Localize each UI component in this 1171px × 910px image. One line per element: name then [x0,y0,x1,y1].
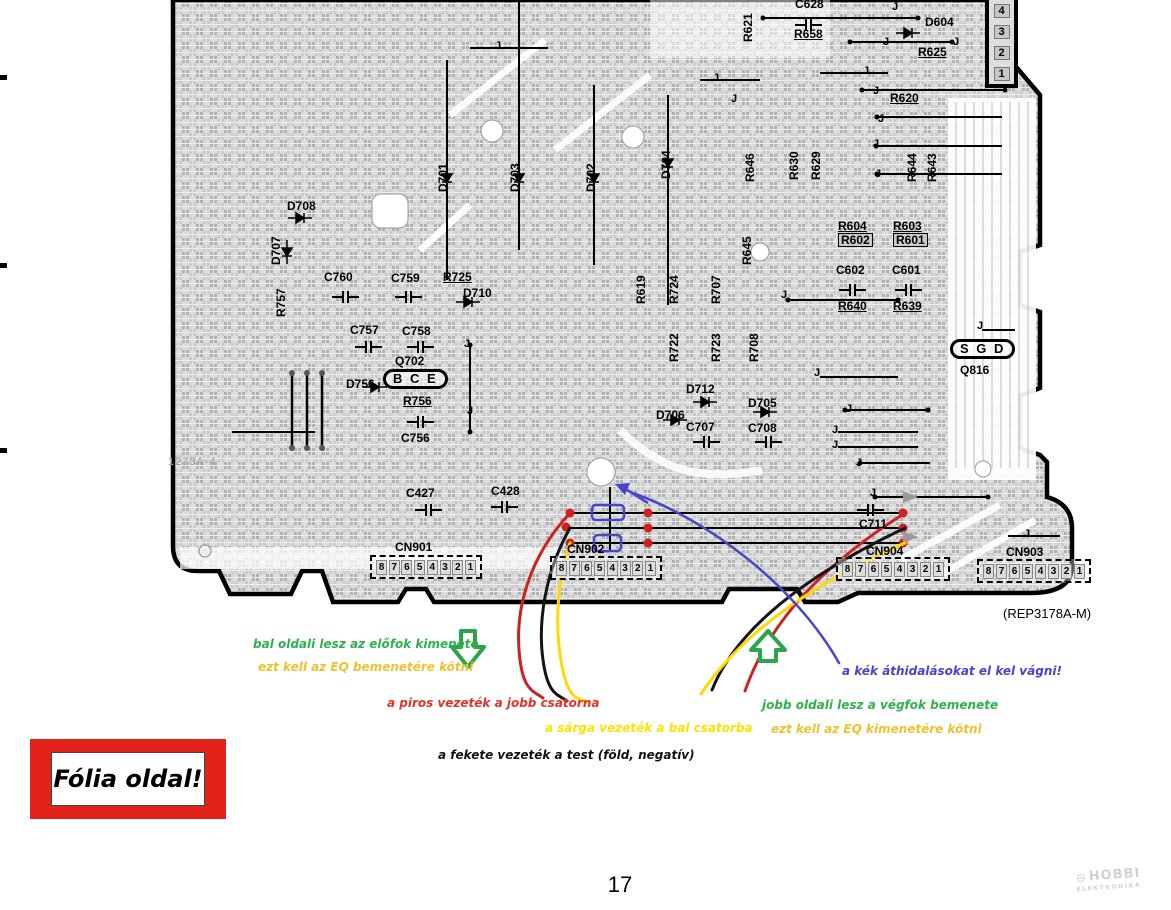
scanned-page: 4321 CN90187654321CN90287654321CN9048765… [0,0,1171,910]
annotation-preamp-out: bal oldali lesz az előfok kimenete [253,637,479,651]
annotation-black-wire: a fekete vezeték a test (föld, negatív) [438,748,695,762]
annotation-red-wire: a piros vezeték a jobb csatorna [387,696,599,710]
pin-number: 1 [994,67,1010,81]
folia-stamp-text: Fólia oldal! [53,765,202,793]
annotation-cut-jumpers: a kék áthidalásokat el kel vágni! [842,664,1062,678]
annotation-eq-input: ezt kell az EQ bemenetére kötni [258,660,473,674]
folia-stamp-inner: Fólia oldal! [51,752,205,806]
top-edge-connector: 4321 [985,0,1018,88]
circle-minus-icon: ⊖ [1075,872,1086,883]
folia-stamp: Fólia oldal! [30,739,226,819]
annotation-poweramp-in: jobb oldali lesz a végfok bemenete [762,698,998,712]
annotation-yellow-wire: a sárga vezeték a bal csatorba [545,721,753,735]
page-number: 17 [545,872,695,898]
board-part-number: (REP3178A-M) [1003,608,1091,620]
pin-number: 4 [994,4,1010,18]
hobbi-elektronika-logo: ⊖ HOBBI ELEKTRONIKA [1075,866,1141,893]
annotation-eq-output: ezt kell az EQ kimenetére kötni [771,722,982,736]
pin-number: 2 [994,46,1010,60]
pin-number: 3 [994,25,1010,39]
green-up-arrow [751,631,785,661]
